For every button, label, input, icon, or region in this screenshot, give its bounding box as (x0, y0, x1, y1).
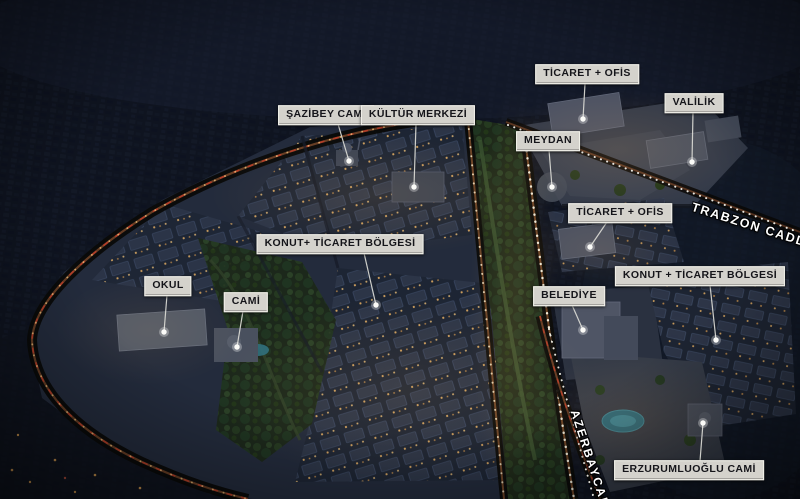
label-okul: OKUL (144, 276, 191, 296)
label-konut-ticaret-right: KONUT + TİCARET BÖLGESİ (615, 266, 785, 286)
label-valilik: VALİLİK (665, 93, 724, 113)
label-erzurumluoglu-cami: ERZURUMLUOĞLU CAMİ (614, 460, 764, 480)
label-konut-ticaret-center: KONUT+ TİCARET BÖLGESİ (257, 234, 424, 254)
label-belediye: BELEDİYE (533, 286, 605, 306)
label-kultur-merkezi: KÜLTÜR MERKEZİ (361, 105, 475, 125)
label-cami: CAMİ (224, 292, 268, 312)
label-ticaret-ofis-mid: TİCARET + OFİS (568, 203, 672, 223)
label-sazibey-cami: ŞAZİBEY CAMİ (278, 105, 374, 125)
label-ticaret-ofis-top: TİCARET + OFİS (535, 64, 639, 84)
label-meydan: MEYDAN (516, 131, 580, 151)
aerial-masterplan-image: TİCARET + OFİS VALİLİK ŞAZİBEY CAMİ KÜLT… (0, 0, 800, 499)
